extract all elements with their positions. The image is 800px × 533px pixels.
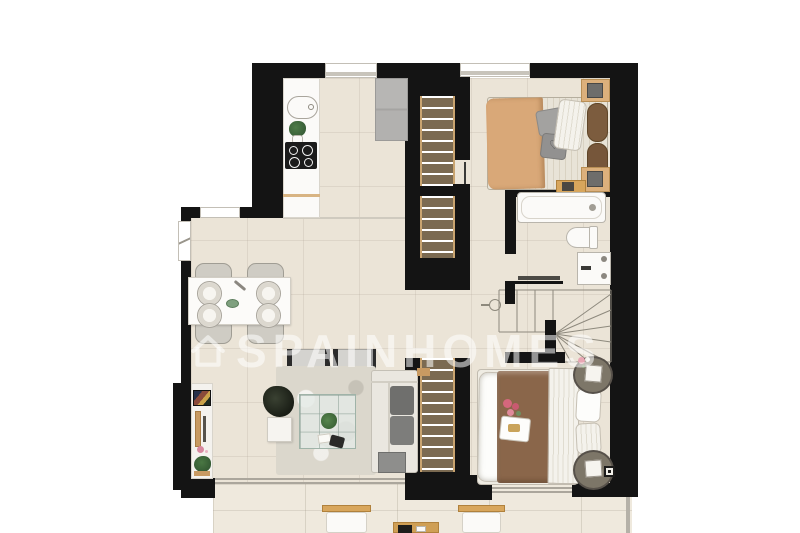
- tv-unit-plant: [194, 456, 211, 472]
- terrace-chair-cushion: [462, 512, 501, 533]
- toilet-tank: [589, 226, 598, 249]
- side-table-white: [267, 417, 292, 442]
- bed1-lamp-bottom: [587, 171, 603, 187]
- wall-socket-box: [604, 466, 615, 477]
- wall-kitchen-top: [283, 63, 325, 78]
- nightstand-flowers: [578, 357, 585, 364]
- winder-wall-top: [505, 282, 515, 304]
- sofa-cushion: [390, 386, 414, 415]
- bathroom-door-leaf: [518, 276, 560, 280]
- terrace-chair-frame: [458, 505, 505, 512]
- bed2-gold-item: [508, 424, 520, 432]
- wall-bottom-left-block: [181, 478, 215, 498]
- window-sill: [461, 71, 529, 75]
- kitchen-counter-wood-edge: [283, 194, 320, 197]
- basin-knob: [601, 256, 607, 262]
- sofa-cushion: [390, 416, 414, 445]
- floor-plan-canvas: ♡: [0, 0, 800, 533]
- stair-start-symbol: [489, 299, 501, 311]
- wall-bathroom-left: [505, 192, 516, 254]
- terrace-glass-rail: [626, 497, 630, 533]
- stair-flight-upper-a: [420, 96, 455, 186]
- bedroom1-door-leaf: [453, 184, 470, 191]
- bedroom1-door-swing: [464, 162, 466, 186]
- bed1-lamp-top: [587, 83, 603, 98]
- bath-shelf-item: [562, 182, 574, 191]
- sofa-chaise: [378, 452, 406, 473]
- cooktop-burner: [302, 145, 313, 156]
- terrace-table-deco: [398, 525, 412, 533]
- kitchen-tall-unit: [375, 78, 408, 141]
- wall-kitchen-left: [252, 63, 283, 218]
- shelf-dark-strip: [203, 416, 206, 442]
- basin-faucet: [581, 266, 591, 270]
- bathtub-drain: [589, 204, 596, 211]
- sofa-side-wood: [417, 368, 430, 376]
- bedroom1-door-opening: [455, 160, 470, 186]
- winder-wall-mid: [545, 320, 556, 363]
- stair-flight-upper-b: [420, 196, 455, 258]
- window-living-left: [178, 221, 191, 261]
- sliding-door-bedroom-2: [492, 487, 572, 493]
- dinner-plate: [256, 303, 281, 328]
- bed2-flowers: [503, 399, 512, 408]
- basin-knob: [601, 273, 607, 279]
- living-plant-dark: [263, 386, 294, 417]
- tv-unit-flowers: [197, 446, 204, 453]
- window-kitchen: [325, 63, 377, 78]
- terrace-chair-cushion: [326, 512, 367, 533]
- terrace-chair-frame: [322, 505, 371, 512]
- wall-top-mid: [377, 63, 405, 78]
- window-sill: [326, 72, 376, 76]
- tv-unit-wood-base: [194, 471, 210, 476]
- winder-rail-line: [505, 281, 563, 284]
- wall-right-outer: [610, 63, 638, 497]
- green-dish: [226, 299, 239, 308]
- winder-wall-bottom: [505, 352, 565, 363]
- stair-start-line: [481, 304, 490, 306]
- cooktop-burner: [289, 146, 298, 155]
- window-bedroom-1: [460, 63, 530, 77]
- tv-screen: [193, 390, 211, 406]
- entry-door-top: [200, 207, 240, 218]
- bed2-lamp-bottom: [584, 459, 602, 477]
- sliding-door-living: [215, 478, 405, 484]
- bed1-cushion-brown: [587, 103, 608, 142]
- terrace-table-book: [416, 526, 426, 532]
- bed2-lamp-top: [584, 364, 602, 382]
- shelf-wood-strip: [195, 411, 201, 447]
- sink-faucet: [308, 104, 314, 110]
- sofa-armrest: [371, 381, 418, 383]
- cooktop-burner: [289, 157, 300, 168]
- outside-area: [189, 58, 252, 207]
- cooktop-burner: [304, 158, 313, 167]
- dinner-plate: [197, 303, 222, 328]
- wall-tv-recess: [173, 383, 191, 490]
